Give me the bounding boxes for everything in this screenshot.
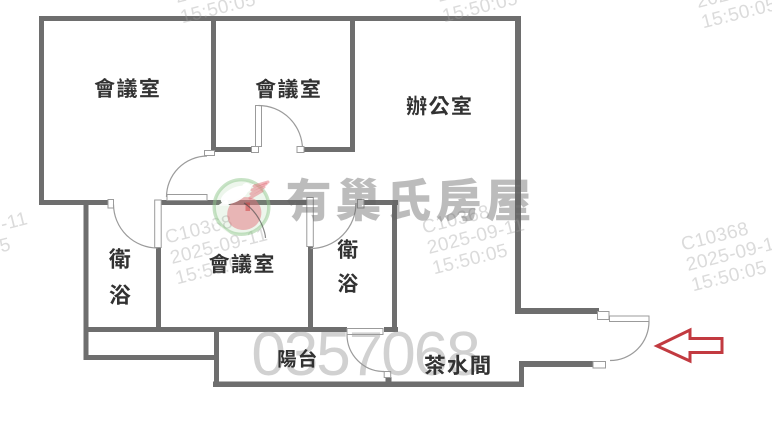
svg-text:0357068: 0357068 [251,320,478,389]
